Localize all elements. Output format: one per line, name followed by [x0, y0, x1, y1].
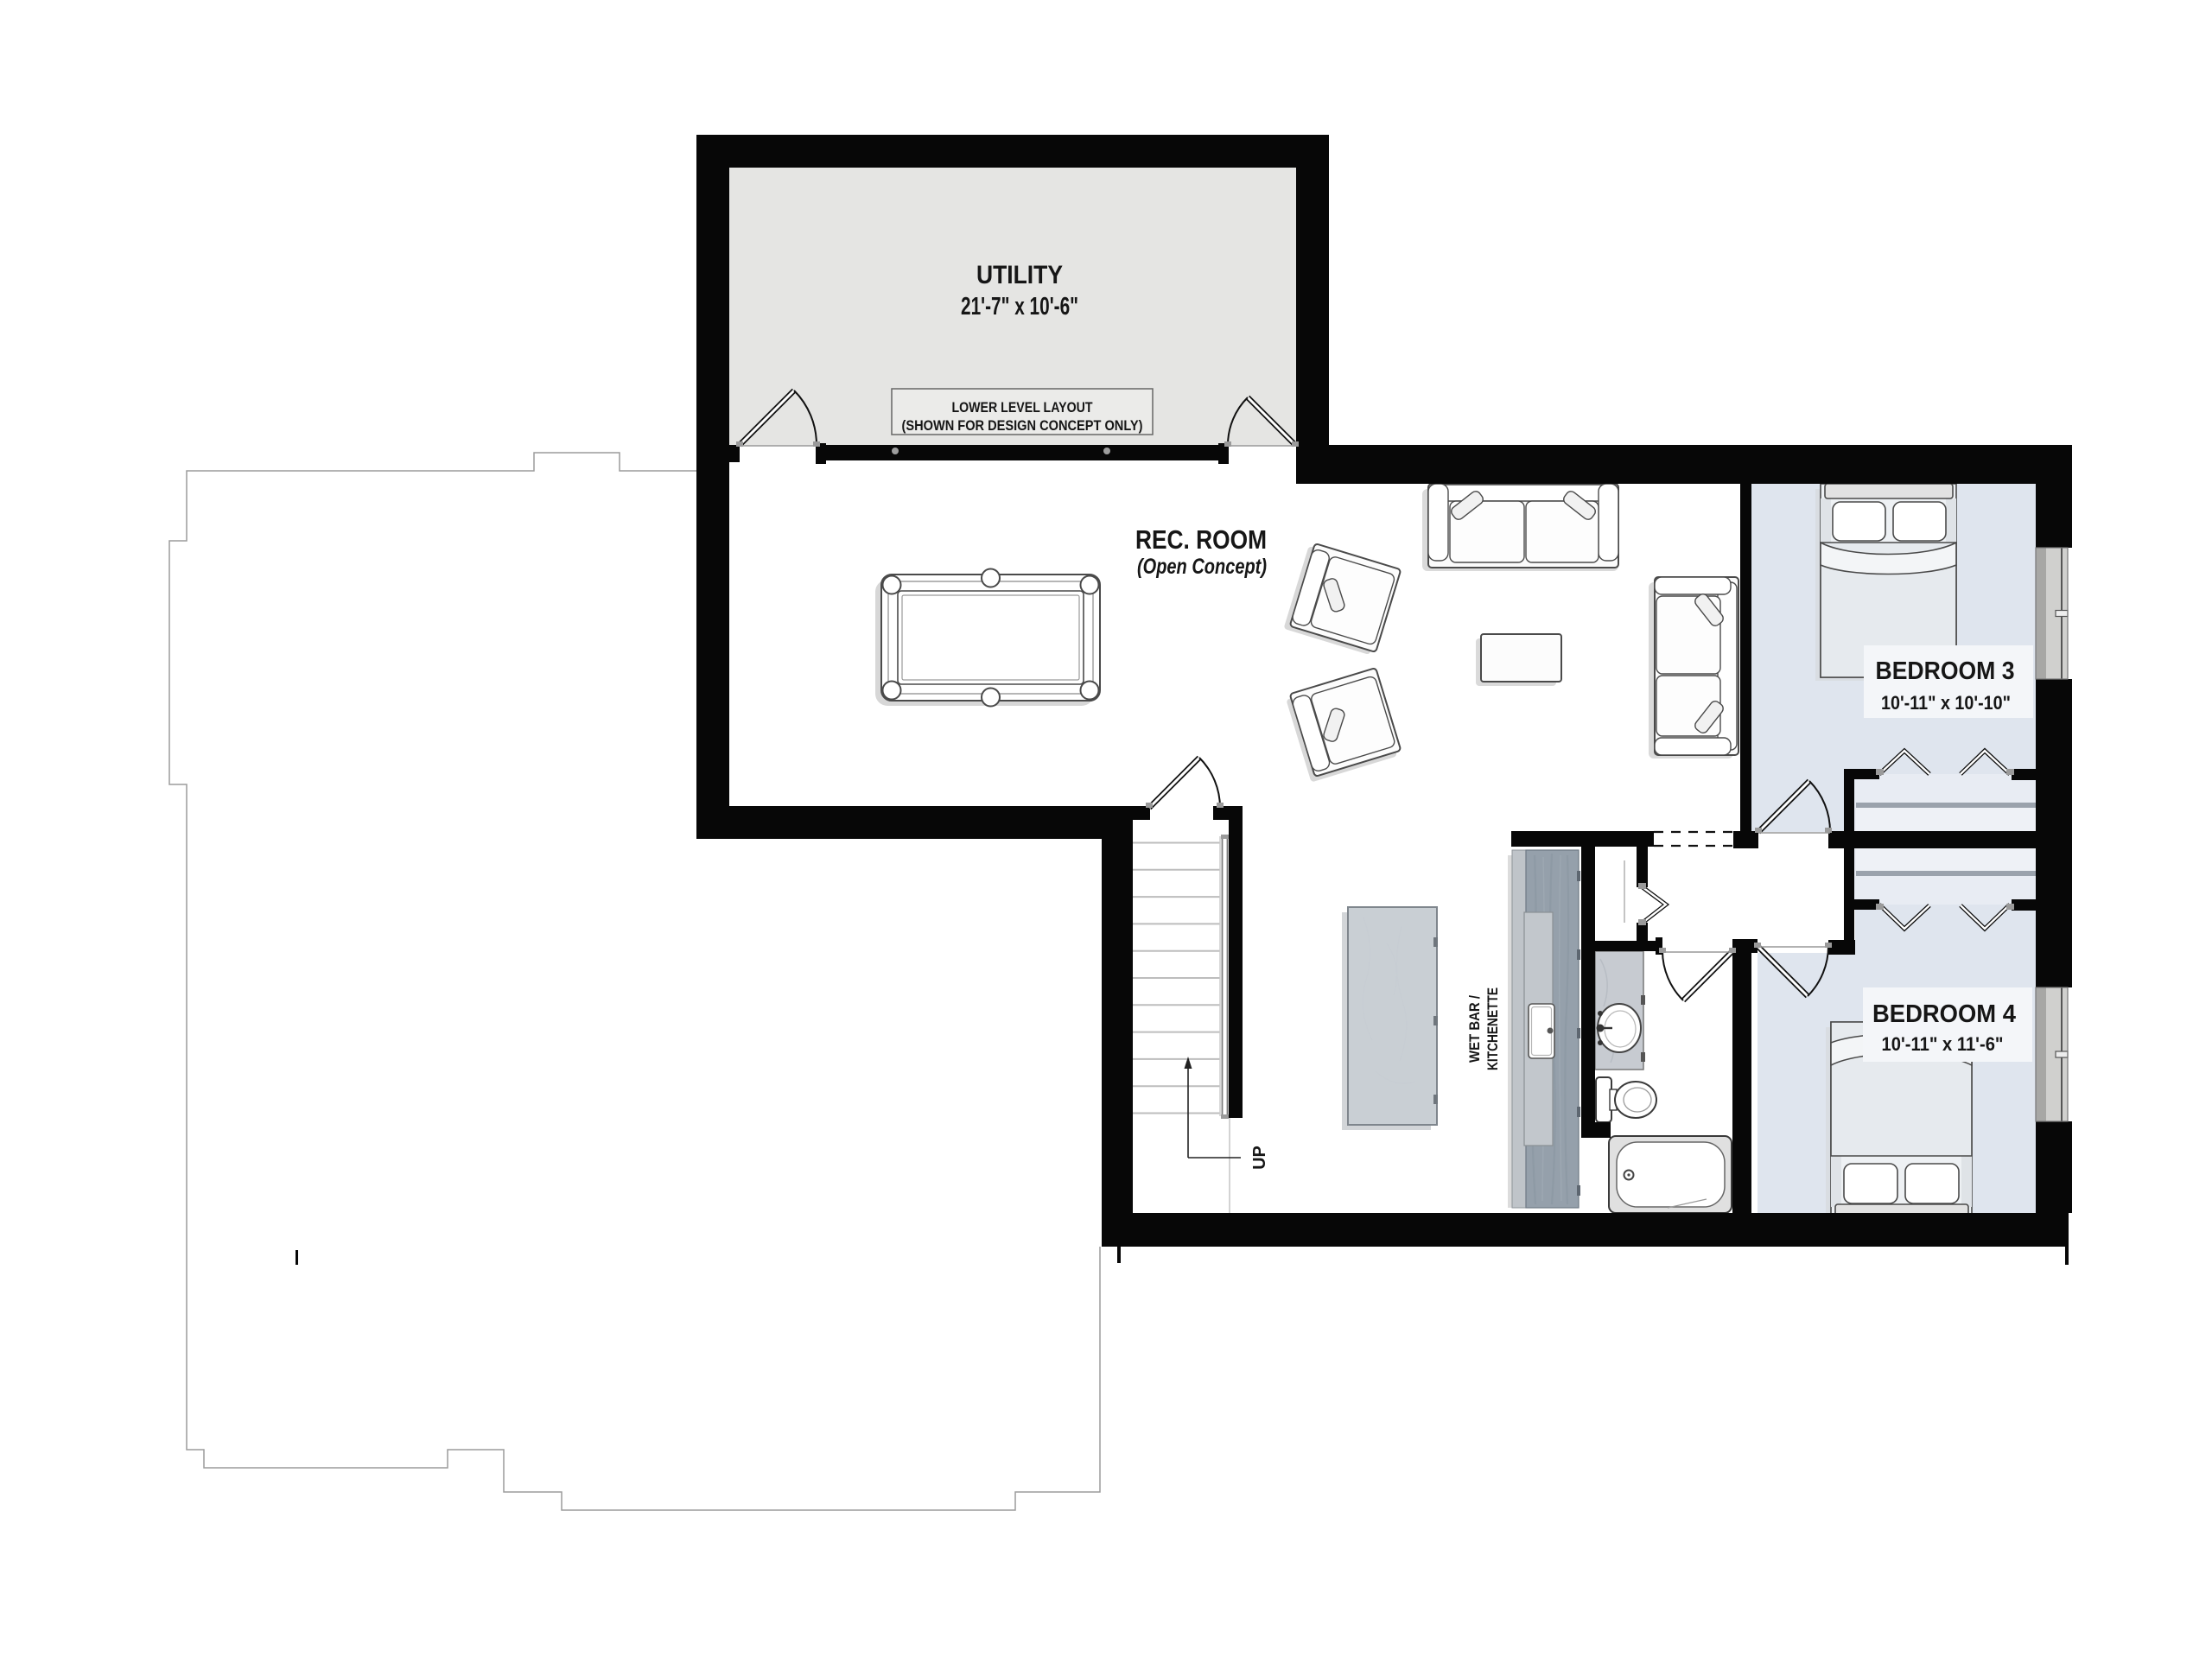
- svg-text:LOWER LEVEL LAYOUT: LOWER LEVEL LAYOUT: [952, 399, 1094, 416]
- svg-text:10'-11" x 11'-6": 10'-11" x 11'-6": [1882, 1033, 2004, 1055]
- svg-text:REC. ROOM: REC. ROOM: [1135, 524, 1267, 555]
- svg-text:BEDROOM 4: BEDROOM 4: [1872, 1000, 2016, 1028]
- svg-text:UTILITY: UTILITY: [976, 261, 1063, 289]
- svg-text:WET BAR /: WET BAR /: [1466, 995, 1483, 1063]
- svg-text:10'-11" x 10'-10": 10'-11" x 10'-10": [1881, 692, 2011, 714]
- svg-text:UP: UP: [1250, 1146, 1269, 1170]
- svg-text:KITCHENETTE: KITCHENETTE: [1484, 987, 1501, 1070]
- svg-text:BEDROOM 3: BEDROOM 3: [1876, 657, 2015, 685]
- svg-text:21'-7" x 10'-6": 21'-7" x 10'-6": [961, 293, 1078, 321]
- svg-text:(SHOWN FOR DESIGN CONCEPT ONLY: (SHOWN FOR DESIGN CONCEPT ONLY): [902, 417, 1143, 434]
- svg-text:(Open Concept): (Open Concept): [1137, 555, 1267, 579]
